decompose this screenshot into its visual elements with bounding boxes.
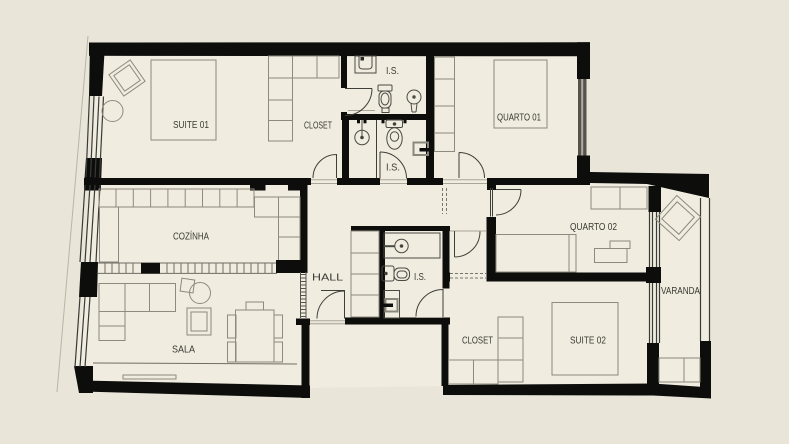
svg-text:CLOSET: CLOSET — [304, 120, 332, 132]
svg-text:QUARTO 02: QUARTO 02 — [570, 221, 617, 233]
svg-text:HALL: HALL — [312, 272, 343, 284]
svg-text:I.S.: I.S. — [414, 271, 426, 283]
svg-text:SALA: SALA — [172, 344, 195, 356]
svg-text:SUITE 01: SUITE 01 — [173, 119, 209, 131]
svg-text:CLOSET: CLOSET — [462, 335, 493, 347]
svg-text:I.S.: I.S. — [386, 162, 400, 174]
svg-text:VARANDA: VARANDA — [661, 285, 700, 297]
svg-text:I.S.: I.S. — [386, 65, 399, 77]
svg-text:COZÍNHA: COZÍNHA — [173, 230, 209, 243]
svg-text:QUARTO 01: QUARTO 01 — [497, 112, 541, 124]
svg-text:SUITE 02: SUITE 02 — [570, 335, 606, 347]
